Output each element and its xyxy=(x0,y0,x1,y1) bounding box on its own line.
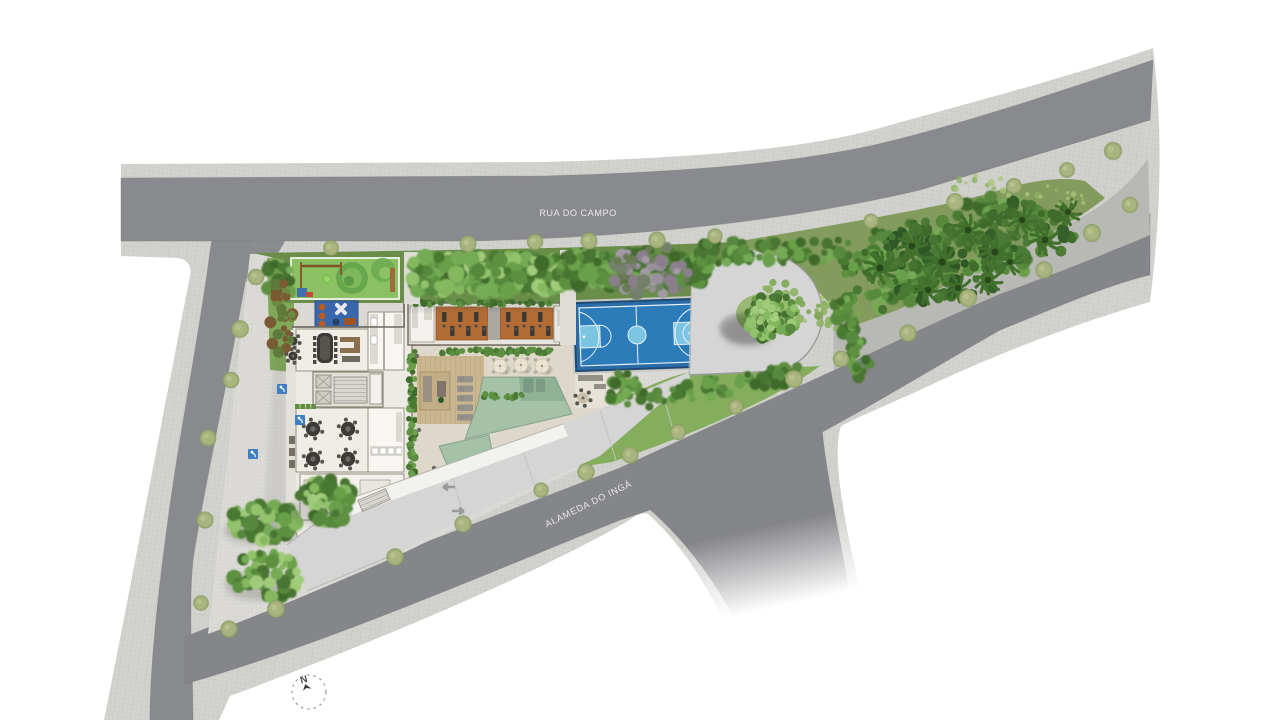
svg-text:RUA DO CAMPO: RUA DO CAMPO xyxy=(539,208,616,218)
